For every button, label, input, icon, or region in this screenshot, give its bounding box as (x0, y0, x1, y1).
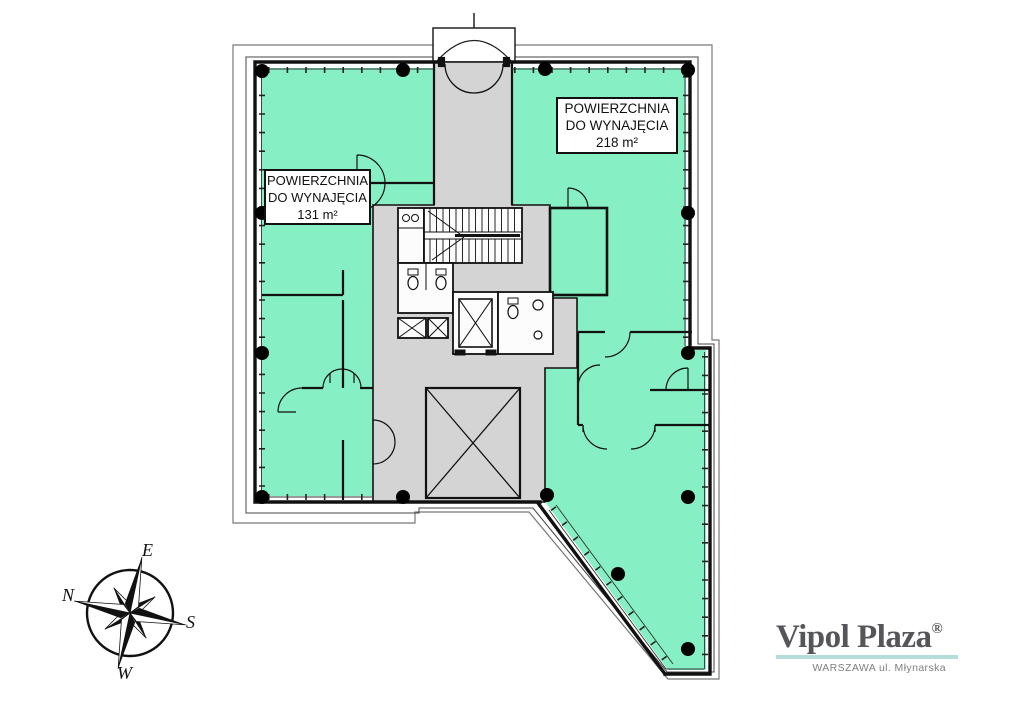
void-shaft (426, 388, 520, 498)
green-room (550, 208, 607, 295)
registered-mark: ® (932, 621, 943, 637)
floor-plan-page: E N S W POWIERZCHNIA DO WYNAJĘCIA 218 m²… (0, 0, 1024, 724)
area-label-218: POWIERZCHNIA DO WYNAJĘCIA 218 m² (556, 97, 678, 154)
vipol-plaza-logo: Vipol Plaza® WARSZAWA ul. Młynarska (776, 612, 960, 674)
compass-north-label: N (62, 585, 74, 606)
area-label-line: 131 m² (266, 206, 369, 223)
compass-rose (62, 545, 197, 680)
wc-right (498, 292, 553, 354)
area-label-line: POWIERZCHNIA (558, 100, 676, 117)
logo-tagline: WARSZAWA ul. Młynarska (776, 662, 960, 674)
area-label-line: DO WYNAJĘCIA (558, 117, 676, 134)
area-label-line: DO WYNAJĘCIA (266, 189, 369, 206)
kitchenette (398, 208, 424, 263)
logo-underline (776, 655, 958, 659)
compass-west-label: W (117, 663, 132, 684)
logo-brand-text: Vipol Plaza® (776, 612, 960, 654)
area-label-line: POWIERZCHNIA (266, 172, 369, 189)
area-label-131: POWIERZCHNIA DO WYNAJĘCIA 131 m² (264, 169, 371, 225)
compass-east-label: E (142, 540, 153, 561)
area-label-line: 218 m² (558, 134, 676, 151)
entrance-canopy (433, 13, 515, 62)
sink (533, 300, 543, 310)
sink (534, 331, 542, 339)
compass-south-label: S (186, 612, 195, 633)
